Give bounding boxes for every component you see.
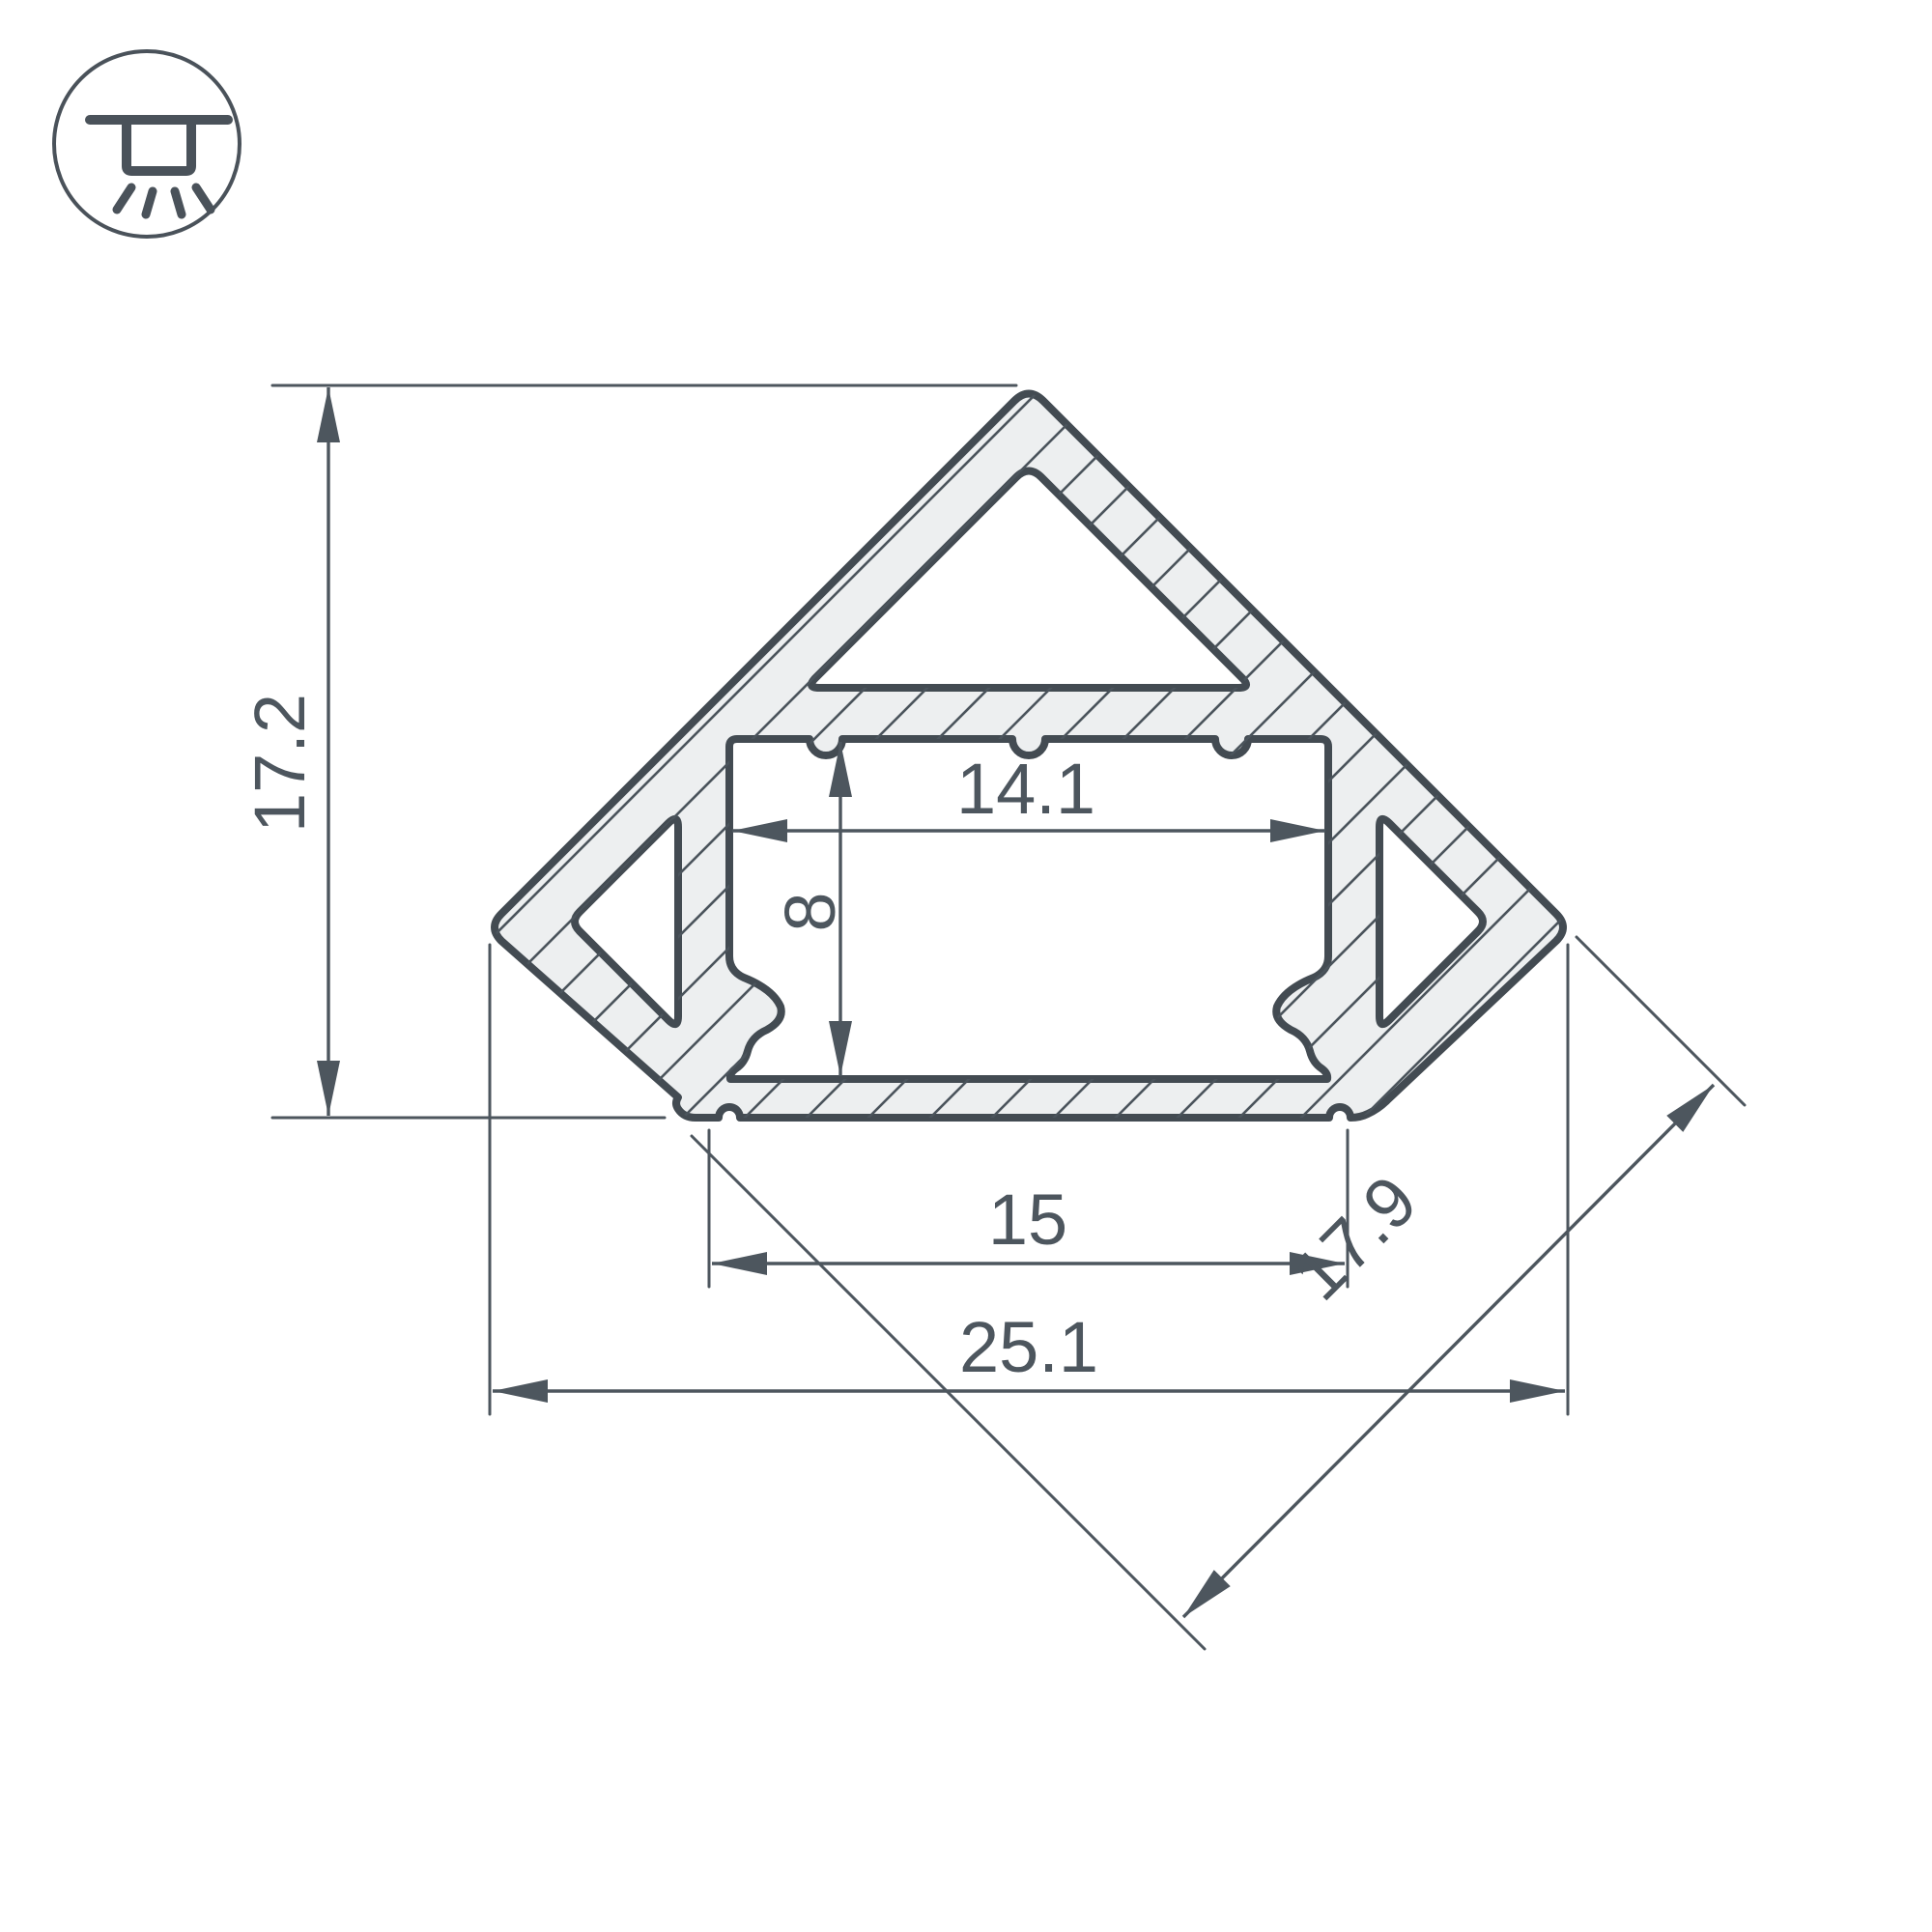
dimension-label-base-width: 15 bbox=[988, 1179, 1067, 1260]
dimension-label-channel-width: 14.1 bbox=[956, 749, 1095, 829]
dimension-channel-depth: 8 bbox=[770, 742, 850, 1076]
dimension-label-height: 17.2 bbox=[240, 694, 320, 833]
light-rays bbox=[117, 187, 211, 214]
dimension-diagonal-width: 17.9 bbox=[692, 937, 1745, 1649]
extension-line-diagonal-right bbox=[1577, 937, 1745, 1105]
profile-body bbox=[304, 377, 1932, 1125]
dimension-channel-width: 14.1 bbox=[732, 749, 1325, 831]
ceiling-light-icon bbox=[54, 51, 240, 237]
drawing-canvas: 17.2 14.1 8 15 25.1 17.9 bbox=[0, 0, 1932, 1932]
dimension-label-overall-width: 25.1 bbox=[959, 1307, 1098, 1387]
dimension-label-channel-depth: 8 bbox=[770, 892, 850, 931]
dimension-line-diagonal bbox=[1183, 1085, 1714, 1617]
dimension-label-diagonal: 17.9 bbox=[1277, 1160, 1433, 1316]
dimension-base-width: 15 bbox=[709, 1130, 1348, 1287]
profile-drawing: 17.2 14.1 8 15 25.1 17.9 bbox=[0, 0, 1932, 1932]
fixture-box bbox=[127, 120, 191, 171]
